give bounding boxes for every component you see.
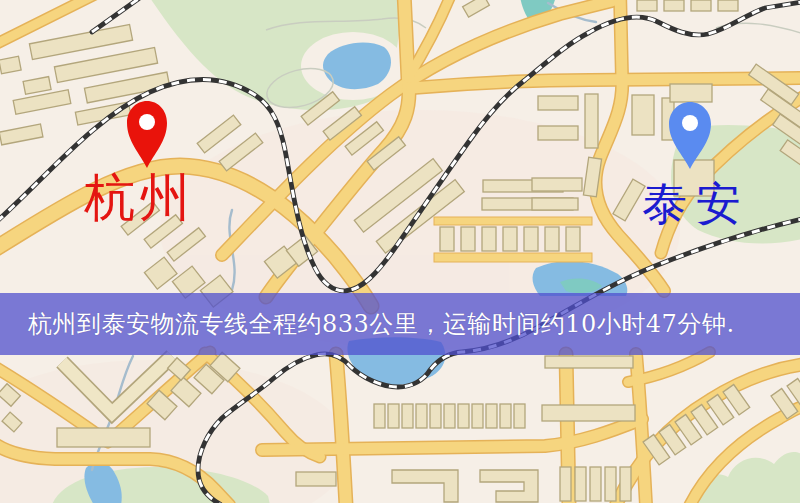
logistics-route-map: 杭州 泰安 杭州到泰安物流专线全程约833公里，运输时间约10小时47分钟.	[0, 0, 800, 503]
origin-pin-icon[interactable]	[127, 101, 167, 168]
route-info-text: 杭州到泰安物流专线全程约833公里，运输时间约10小时47分钟.	[0, 308, 735, 340]
origin-city-label: 杭州	[84, 172, 194, 223]
route-info-banner: 杭州到泰安物流专线全程约833公里，运输时间约10小时47分钟.	[0, 293, 800, 355]
destination-city-label: 泰安	[642, 181, 750, 226]
map-canvas	[0, 0, 800, 503]
